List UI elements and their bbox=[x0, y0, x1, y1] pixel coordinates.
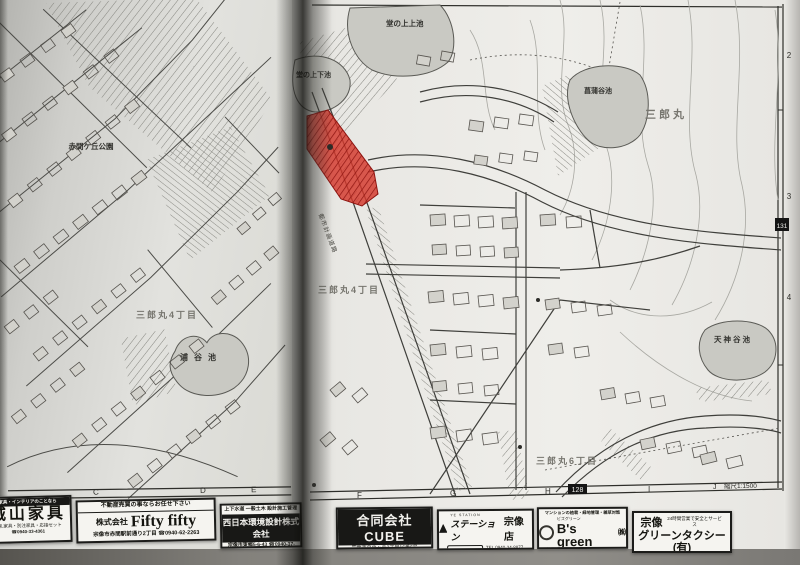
building-footprint bbox=[416, 55, 430, 66]
building-footprint bbox=[147, 458, 162, 472]
building-footprint bbox=[494, 117, 509, 129]
grid-number: 4 bbox=[787, 293, 792, 302]
leaf-logo-icon bbox=[539, 525, 554, 540]
roof-logo-icon bbox=[439, 524, 448, 533]
building-footprint bbox=[72, 315, 87, 329]
building-footprint bbox=[499, 153, 513, 164]
scanned-map-book-page: C D E bbox=[0, 0, 800, 565]
slope-hatch bbox=[695, 380, 772, 402]
building-footprint bbox=[458, 383, 473, 394]
building-footprint bbox=[482, 432, 498, 445]
map-dot bbox=[312, 483, 316, 487]
grid-number: 2 bbox=[787, 51, 792, 60]
grid-letter: F bbox=[357, 491, 362, 500]
grid-letter: D bbox=[200, 486, 206, 495]
ad-iestation-tel: TEL 0940-34-8877 bbox=[486, 545, 524, 550]
map-linework: C D E bbox=[0, 0, 800, 565]
building-footprint bbox=[666, 441, 682, 454]
grid-letter: H bbox=[545, 487, 551, 496]
building-footprint bbox=[53, 331, 68, 345]
left-page-linework: C D E bbox=[0, 0, 292, 505]
grid-letter: E bbox=[251, 485, 257, 494]
building-footprint bbox=[111, 284, 126, 298]
grid-number: 3 bbox=[787, 192, 792, 201]
building-footprint bbox=[131, 268, 146, 282]
park-label-akamagaoka: 赤間ケ丘公園 bbox=[62, 142, 120, 151]
ad-cube: 合同会社CUBE 宗像市自由ヶ丘3丁目16番6号 ☎0940-72-5226 F… bbox=[336, 506, 433, 549]
right-page-linework: F G H I 128 J 縮尺1:1500 2 3 4 131 bbox=[293, 0, 792, 500]
building-footprint bbox=[540, 214, 556, 226]
building-footprint bbox=[502, 217, 518, 229]
map-scale-label: 縮尺1:1500 bbox=[724, 481, 757, 490]
ad-greentaxi-region: 宗像 bbox=[641, 514, 663, 530]
building-footprint bbox=[92, 417, 107, 431]
building-footprint bbox=[70, 362, 85, 376]
building-footprint bbox=[131, 170, 147, 185]
building-footprint bbox=[34, 244, 50, 259]
ad-bsgreen-title: B's green bbox=[557, 522, 615, 548]
slope-hatch bbox=[601, 428, 652, 482]
grid-letter: C bbox=[93, 488, 99, 497]
building-footprint bbox=[545, 298, 560, 310]
building-footprint bbox=[574, 346, 589, 358]
building-footprint bbox=[105, 115, 120, 129]
building-footprint bbox=[504, 247, 519, 258]
pond-label-donoue-kami: 堂の上上池 bbox=[386, 18, 424, 29]
building-footprint bbox=[229, 275, 244, 290]
building-footprint bbox=[31, 394, 46, 408]
building-footprint bbox=[625, 392, 641, 404]
grid-letter: I bbox=[648, 485, 650, 494]
building-footprint bbox=[63, 80, 78, 94]
building-footprint bbox=[430, 343, 446, 356]
building-footprint bbox=[454, 215, 470, 227]
map-dot bbox=[518, 445, 522, 449]
building-footprint bbox=[432, 244, 447, 255]
building-footprint bbox=[503, 296, 519, 309]
building-footprint bbox=[330, 382, 346, 397]
parcel-marker-dot bbox=[327, 144, 333, 150]
building-footprint bbox=[73, 214, 89, 229]
building-footprint bbox=[320, 432, 336, 447]
building-footprint bbox=[50, 378, 65, 392]
building-footprint bbox=[4, 319, 19, 333]
district-label-saburomaru6: 三郎丸6丁目 bbox=[536, 454, 598, 467]
grid-letter: G bbox=[450, 489, 456, 498]
building-footprint bbox=[111, 402, 126, 416]
building-footprint bbox=[600, 388, 616, 400]
building-footprint bbox=[456, 245, 471, 256]
ad-cube-title: 合同会社CUBE bbox=[338, 509, 431, 546]
ad-bsgreen-suffix: ㈱ bbox=[618, 527, 626, 538]
building-footprint bbox=[430, 426, 446, 439]
ad-nishinihon-line: 宗像市東郷5-6-43 ☎0940-37-0436 bbox=[222, 541, 300, 549]
building-footprint bbox=[264, 246, 279, 261]
pond-label-uradani: 浦谷池 bbox=[180, 352, 222, 363]
building-footprint bbox=[519, 114, 534, 126]
building-footprint bbox=[128, 473, 143, 487]
building-footprint bbox=[428, 290, 444, 303]
building-footprint bbox=[211, 290, 226, 305]
ad-iestation-brand: ステーション bbox=[450, 517, 501, 543]
building-footprint bbox=[453, 292, 469, 305]
building-footprint bbox=[14, 258, 30, 273]
building-footprint bbox=[33, 346, 48, 360]
map-dot bbox=[536, 298, 540, 302]
building-footprint bbox=[225, 400, 240, 414]
building-footprint bbox=[43, 290, 58, 304]
ad-nishinihon: 上下水道 一般土木 設計施工管理 西日本環境設計株式会社 宗像市東郷5-6-43… bbox=[220, 502, 303, 548]
road-lines bbox=[312, 86, 781, 497]
building-footprint bbox=[42, 96, 57, 110]
ad-fiftyfifty-company: 株式会社 bbox=[96, 517, 128, 529]
building-footprint bbox=[469, 120, 484, 132]
building-footprint bbox=[11, 409, 26, 423]
ad-iestation-title: 宗像店 bbox=[504, 513, 532, 543]
slope-hatch bbox=[498, 430, 530, 500]
pond-label-shobudani: 菖蒲谷池 bbox=[584, 86, 612, 96]
building-footprint bbox=[640, 437, 656, 450]
ad-iestation-badge: アイワ企画 bbox=[448, 545, 483, 550]
district-label-saburomaru: 三郎丸 bbox=[645, 106, 687, 122]
building-footprint bbox=[524, 151, 538, 162]
building-footprint bbox=[480, 246, 495, 257]
building-footprint bbox=[252, 207, 266, 220]
ad-fiftyfifty: 不動産売買の事ならお任せ下さい 株式会社 Fifty fifty 宗像市赤間駅前… bbox=[76, 498, 217, 544]
building-footprint bbox=[478, 294, 494, 307]
building-footprint bbox=[482, 347, 498, 360]
building-footprint bbox=[700, 451, 717, 464]
page-number-bottom: 128 bbox=[572, 487, 584, 494]
ad-iestation: YE STATION ステーション 宗像店 アイワ企画 TEL 0940-34-… bbox=[437, 509, 534, 551]
building-footprint bbox=[24, 305, 39, 319]
building-footprint bbox=[456, 345, 472, 358]
building-footprint bbox=[352, 388, 368, 403]
building-footprint bbox=[167, 444, 182, 458]
ad-nishinihon-title: 西日本環境設計株式会社 bbox=[222, 513, 300, 542]
building-footprint bbox=[268, 192, 282, 205]
building-footprint bbox=[246, 261, 261, 276]
ad-fiftyfifty-title: Fifty fifty bbox=[131, 512, 197, 531]
building-footprint bbox=[92, 200, 108, 215]
grid-corner-letter: J bbox=[713, 484, 717, 491]
building-footprint bbox=[430, 214, 446, 226]
ad-greentaxi: 宗像 24時間営業で安全とサービス グリーンタクシー(有) ☎ 0940(33)… bbox=[632, 511, 732, 553]
pond-dam-hatch bbox=[120, 329, 177, 406]
page-number-side: 131 bbox=[777, 223, 788, 230]
building-footprint bbox=[726, 455, 743, 468]
building-footprint bbox=[0, 68, 14, 82]
building-footprint bbox=[186, 429, 201, 443]
building-footprint bbox=[342, 440, 358, 455]
district-label-saburomaru4-right: 三郎丸4丁目 bbox=[318, 283, 380, 296]
building-footprint bbox=[237, 222, 251, 235]
building-footprint bbox=[650, 396, 666, 408]
ad-greentaxi-slogan: 24時間営業で安全とサービス bbox=[666, 516, 724, 527]
pond-label-tenjindani: 天神谷池 bbox=[714, 334, 752, 345]
ad-bsgreen: マンションの植栽・緑地管理・雑草対策 ビズグリーン B's green ㈱ 宗像… bbox=[537, 507, 628, 549]
building-footprint bbox=[548, 343, 563, 355]
building-footprint bbox=[432, 381, 447, 392]
building-footprint bbox=[474, 155, 488, 166]
pond-label-donoue-shimo: 堂の上下池 bbox=[296, 70, 331, 80]
building-footprint bbox=[92, 299, 107, 313]
ad-yamakagu: 家具・インテリアのことなら 城山家具 婚礼家具・別注家具・応接セット ☎0940… bbox=[0, 495, 73, 544]
building-footprint bbox=[478, 216, 494, 228]
district-label-saburomaru4-left: 三郎丸4丁目 bbox=[136, 308, 198, 321]
ad-fiftyfifty-line: 宗像市赤間駅前通り2丁目 ☎0940-62-2263 bbox=[78, 529, 214, 539]
ad-yamakagu-phone: ☎0940-33-4361 bbox=[0, 528, 70, 536]
ad-greentaxi-title: グリーンタクシー(有) bbox=[634, 530, 730, 553]
